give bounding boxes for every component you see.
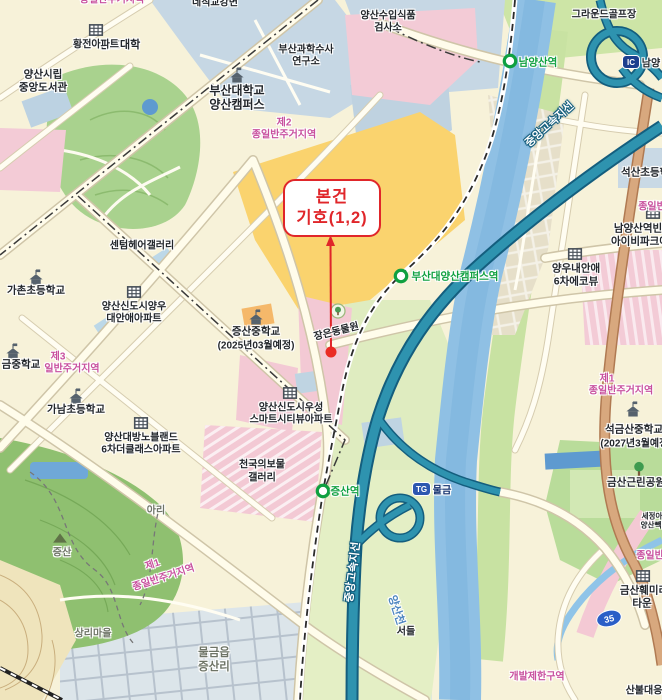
- apartment-icon: [284, 388, 297, 398]
- station-icon: [317, 485, 328, 496]
- map-base-layer: [0, 0, 662, 700]
- apartment-icon: [135, 418, 148, 428]
- poi-tree-icon: [331, 304, 345, 318]
- tg-badge: TG: [413, 483, 430, 495]
- callout-line2: 기호(1,2): [296, 208, 367, 229]
- station-icon: [395, 270, 406, 281]
- apartment-icon: [637, 571, 650, 581]
- station-icon: [504, 55, 515, 66]
- apartment-icon: [128, 287, 141, 297]
- apartment-icon: [647, 208, 660, 218]
- subject-callout: 본건 기호(1,2): [283, 179, 381, 237]
- ic-badge: IC: [623, 56, 639, 68]
- map-canvas[interactable]: 간호대학부산대학교양산캠퍼스부산과학수사연구소양산수입식품검사소그라운드골프장네…: [0, 0, 662, 700]
- apartment-icon: [569, 249, 582, 259]
- apartment-icon: [90, 25, 103, 35]
- subject-marker-dot: [326, 347, 337, 358]
- lake: [30, 462, 88, 479]
- park-pond: [142, 99, 158, 115]
- callout-line1: 본건: [316, 187, 348, 208]
